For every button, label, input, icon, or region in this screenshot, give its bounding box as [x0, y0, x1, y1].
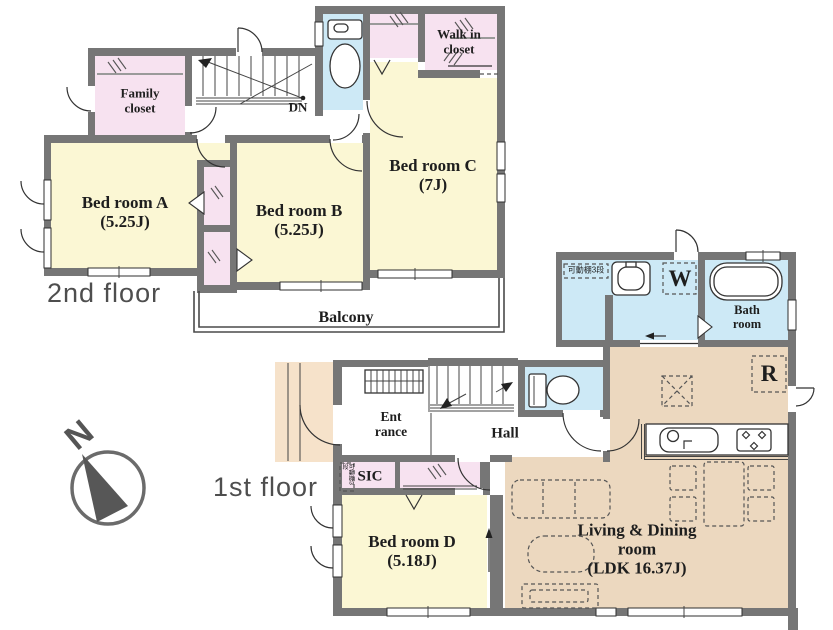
second-floor-label: 2nd floor: [47, 278, 161, 308]
washbasin-icon: [612, 262, 650, 295]
bedroom-a-window-1: [44, 180, 51, 220]
bedroom-d-label: Bed room D(5.18J): [368, 532, 456, 570]
kitchen-counter: [642, 424, 789, 460]
closet-b-floor: [204, 232, 230, 285]
walk-in-closet-label: Walk incloset: [437, 27, 481, 56]
floor-plan-page: N Familycloset Walk incloset DN Bed room…: [0, 0, 833, 630]
compass-north-label: N: [58, 413, 101, 458]
wash-shelf-note: 可動棚3段: [568, 267, 604, 276]
fridge-label: R: [761, 361, 778, 387]
ldk-window-1: [596, 608, 616, 616]
toilet-2f-window: [315, 22, 323, 46]
compass-needle: [82, 454, 128, 522]
bedroom-c-label: Bed room C(7J): [389, 156, 477, 194]
stairs-2f: [196, 56, 312, 104]
bedroom-d-window-1: [333, 505, 342, 537]
bedroom-a-label: Bed room A(5.25J): [82, 193, 169, 231]
bedroom-c-window-2: [497, 142, 505, 170]
toilet-2f-icon: [328, 20, 362, 88]
shoe-cabinet: [365, 370, 423, 393]
bedroom-a-window-2: [44, 228, 51, 268]
stairs-down-label: DN: [289, 101, 308, 116]
stove-icon: [737, 429, 771, 451]
toilet-1f-icon: [529, 374, 579, 407]
bathroom-label: Bathroom: [733, 303, 761, 331]
balcony-label: Balcony: [318, 309, 373, 327]
bathroom-side-window: [788, 300, 796, 330]
bedroom-b-label: Bed room B(5.25J): [256, 201, 343, 239]
entrance-label: Entrance: [375, 409, 407, 439]
ldk-window-2: [628, 608, 742, 616]
sic-label: SIC: [357, 469, 382, 486]
washer-label: W: [669, 266, 692, 292]
hall-label: Hall: [491, 426, 519, 443]
sic-shelf-note: 可動棚3段: [341, 464, 354, 491]
ldk-label: Living & Diningroom(LDK 16.37J): [577, 520, 696, 577]
family-closet-label: Familycloset: [121, 86, 160, 115]
bedroom-d-window-2: [333, 545, 342, 577]
first-floor-label: 1st floor: [213, 472, 318, 502]
bathtub-icon: [710, 263, 782, 300]
bedroom-c-window-3: [497, 174, 505, 202]
compass: N: [58, 413, 144, 524]
porch-floor: [275, 362, 335, 462]
